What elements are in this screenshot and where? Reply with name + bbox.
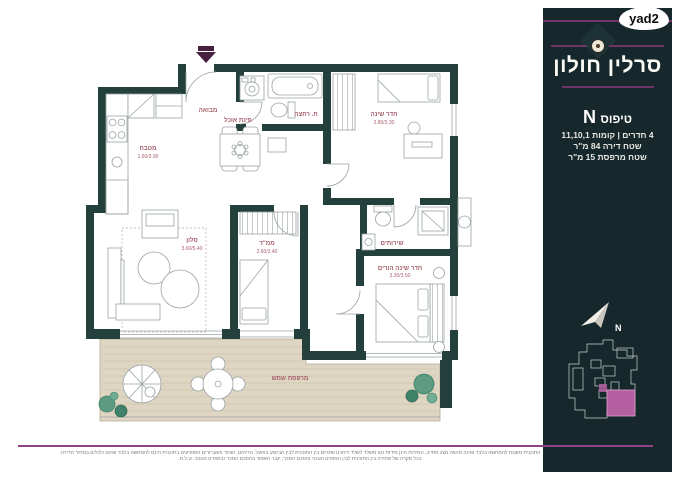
kitchen-counter xyxy=(106,94,128,214)
double-bed xyxy=(376,284,430,342)
building-keyplan xyxy=(559,332,655,432)
bathtub-icon xyxy=(268,74,322,98)
project-logo-badge xyxy=(591,39,605,53)
corner-cabinet xyxy=(128,94,154,118)
logo-rule-left xyxy=(551,45,587,47)
label-bedroom1: חדר שינה xyxy=(371,111,398,118)
label-entry: מבואה xyxy=(199,107,218,114)
dim-kitchen: 1.60/3.90 xyxy=(138,154,159,160)
dining-console xyxy=(268,138,286,152)
keyplan-unit-sliver xyxy=(599,384,607,392)
armchair-2 xyxy=(161,270,199,308)
label-master: חדר שינה הורים xyxy=(378,265,422,272)
wardrobe-2 xyxy=(240,212,296,234)
apartment-specs: 4 חדרים | קומות 11,10,1 שטח דירה 84 מ"ר … xyxy=(543,130,672,163)
sink-2-icon xyxy=(362,234,375,250)
entry-arrow-icon xyxy=(196,46,216,63)
sofa xyxy=(142,210,178,238)
keyplan-highlighted-unit xyxy=(607,390,635,416)
label-balcony: מרפסת שמש xyxy=(272,375,309,382)
balcony-fan-plant xyxy=(123,365,161,403)
logo-rule-right xyxy=(609,45,664,47)
nightstand-lamp-2 xyxy=(434,342,445,353)
dim-living: 3.60/5.40 xyxy=(182,246,203,252)
disclaimer-line-2: בכל מקרה של סתירה בין התוכנית לבין המפרט… xyxy=(40,456,560,462)
bathroom-2 xyxy=(362,206,448,250)
spec-rooms-floors: 4 חדרים | קומות 11,10,1 xyxy=(543,130,672,141)
single-bed-1 xyxy=(378,74,440,102)
title-underline xyxy=(562,86,654,88)
apartment-plan-page: מטבח 1.60/3.90 פינת אוכל מבואה ח. רחצה ח… xyxy=(0,0,675,480)
project-logo-mark xyxy=(596,44,600,48)
label-bath1: ח. רחצה xyxy=(294,111,317,118)
label-living: סלון xyxy=(186,236,198,244)
master-bedroom xyxy=(376,268,445,353)
single-bed-2 xyxy=(240,260,268,324)
project-title: סרלין חולון xyxy=(543,54,672,78)
toilet-2-icon xyxy=(374,206,392,226)
shower-icon xyxy=(418,207,448,235)
info-sidebar: yad2 סרלין חולון טיפוס N 4 חדרים | קומות… xyxy=(543,8,672,472)
floor-plan: מטבח 1.60/3.90 פינת אוכל מבואה ח. רחצה ח… xyxy=(0,0,543,480)
label-kitchen: מטבח xyxy=(139,145,156,152)
spec-apartment-area: שטח דירה 84 מ"ר xyxy=(543,141,672,152)
wardrobe-3 xyxy=(430,284,444,342)
dim-master: 3.30/3.50 xyxy=(390,273,411,279)
bedroom-2-mamad xyxy=(240,212,296,324)
sideboard xyxy=(116,304,160,320)
spec-balcony-area: שטח מרפסת 15 מ"ר xyxy=(543,152,672,163)
label-dining: פינת אוכל xyxy=(224,116,252,124)
service-niche xyxy=(458,198,471,246)
wardrobe-1 xyxy=(333,74,355,130)
label-mamad: ממ"ד xyxy=(259,240,275,247)
nightstand-lamp-1 xyxy=(434,268,445,279)
dining-set xyxy=(220,127,286,171)
label-bath2: שירותים xyxy=(381,240,404,247)
apartment-type: טיפוס N xyxy=(543,107,672,128)
living-room xyxy=(108,210,206,332)
stove-icon xyxy=(107,116,127,142)
dining-table xyxy=(220,134,260,166)
north-indicator: N xyxy=(573,298,633,334)
toilet-icon xyxy=(271,102,295,118)
type-letter: N xyxy=(583,107,596,127)
desk-and-chair xyxy=(404,122,442,158)
yad2-logo[interactable]: yad2 xyxy=(619,7,669,30)
dim-mamad: 2.60/3.40 xyxy=(257,249,278,255)
footer-rule xyxy=(18,445,653,447)
legal-disclaimer: התוכנית מוצגת להמחשה בלבד ואינה מהווה מצ… xyxy=(40,450,560,462)
type-label: טיפוס xyxy=(600,112,631,126)
washing-machine-icon xyxy=(240,76,264,100)
dim-bedroom1: 2.80/3.30 xyxy=(374,120,395,126)
fridge-icon xyxy=(156,94,182,118)
